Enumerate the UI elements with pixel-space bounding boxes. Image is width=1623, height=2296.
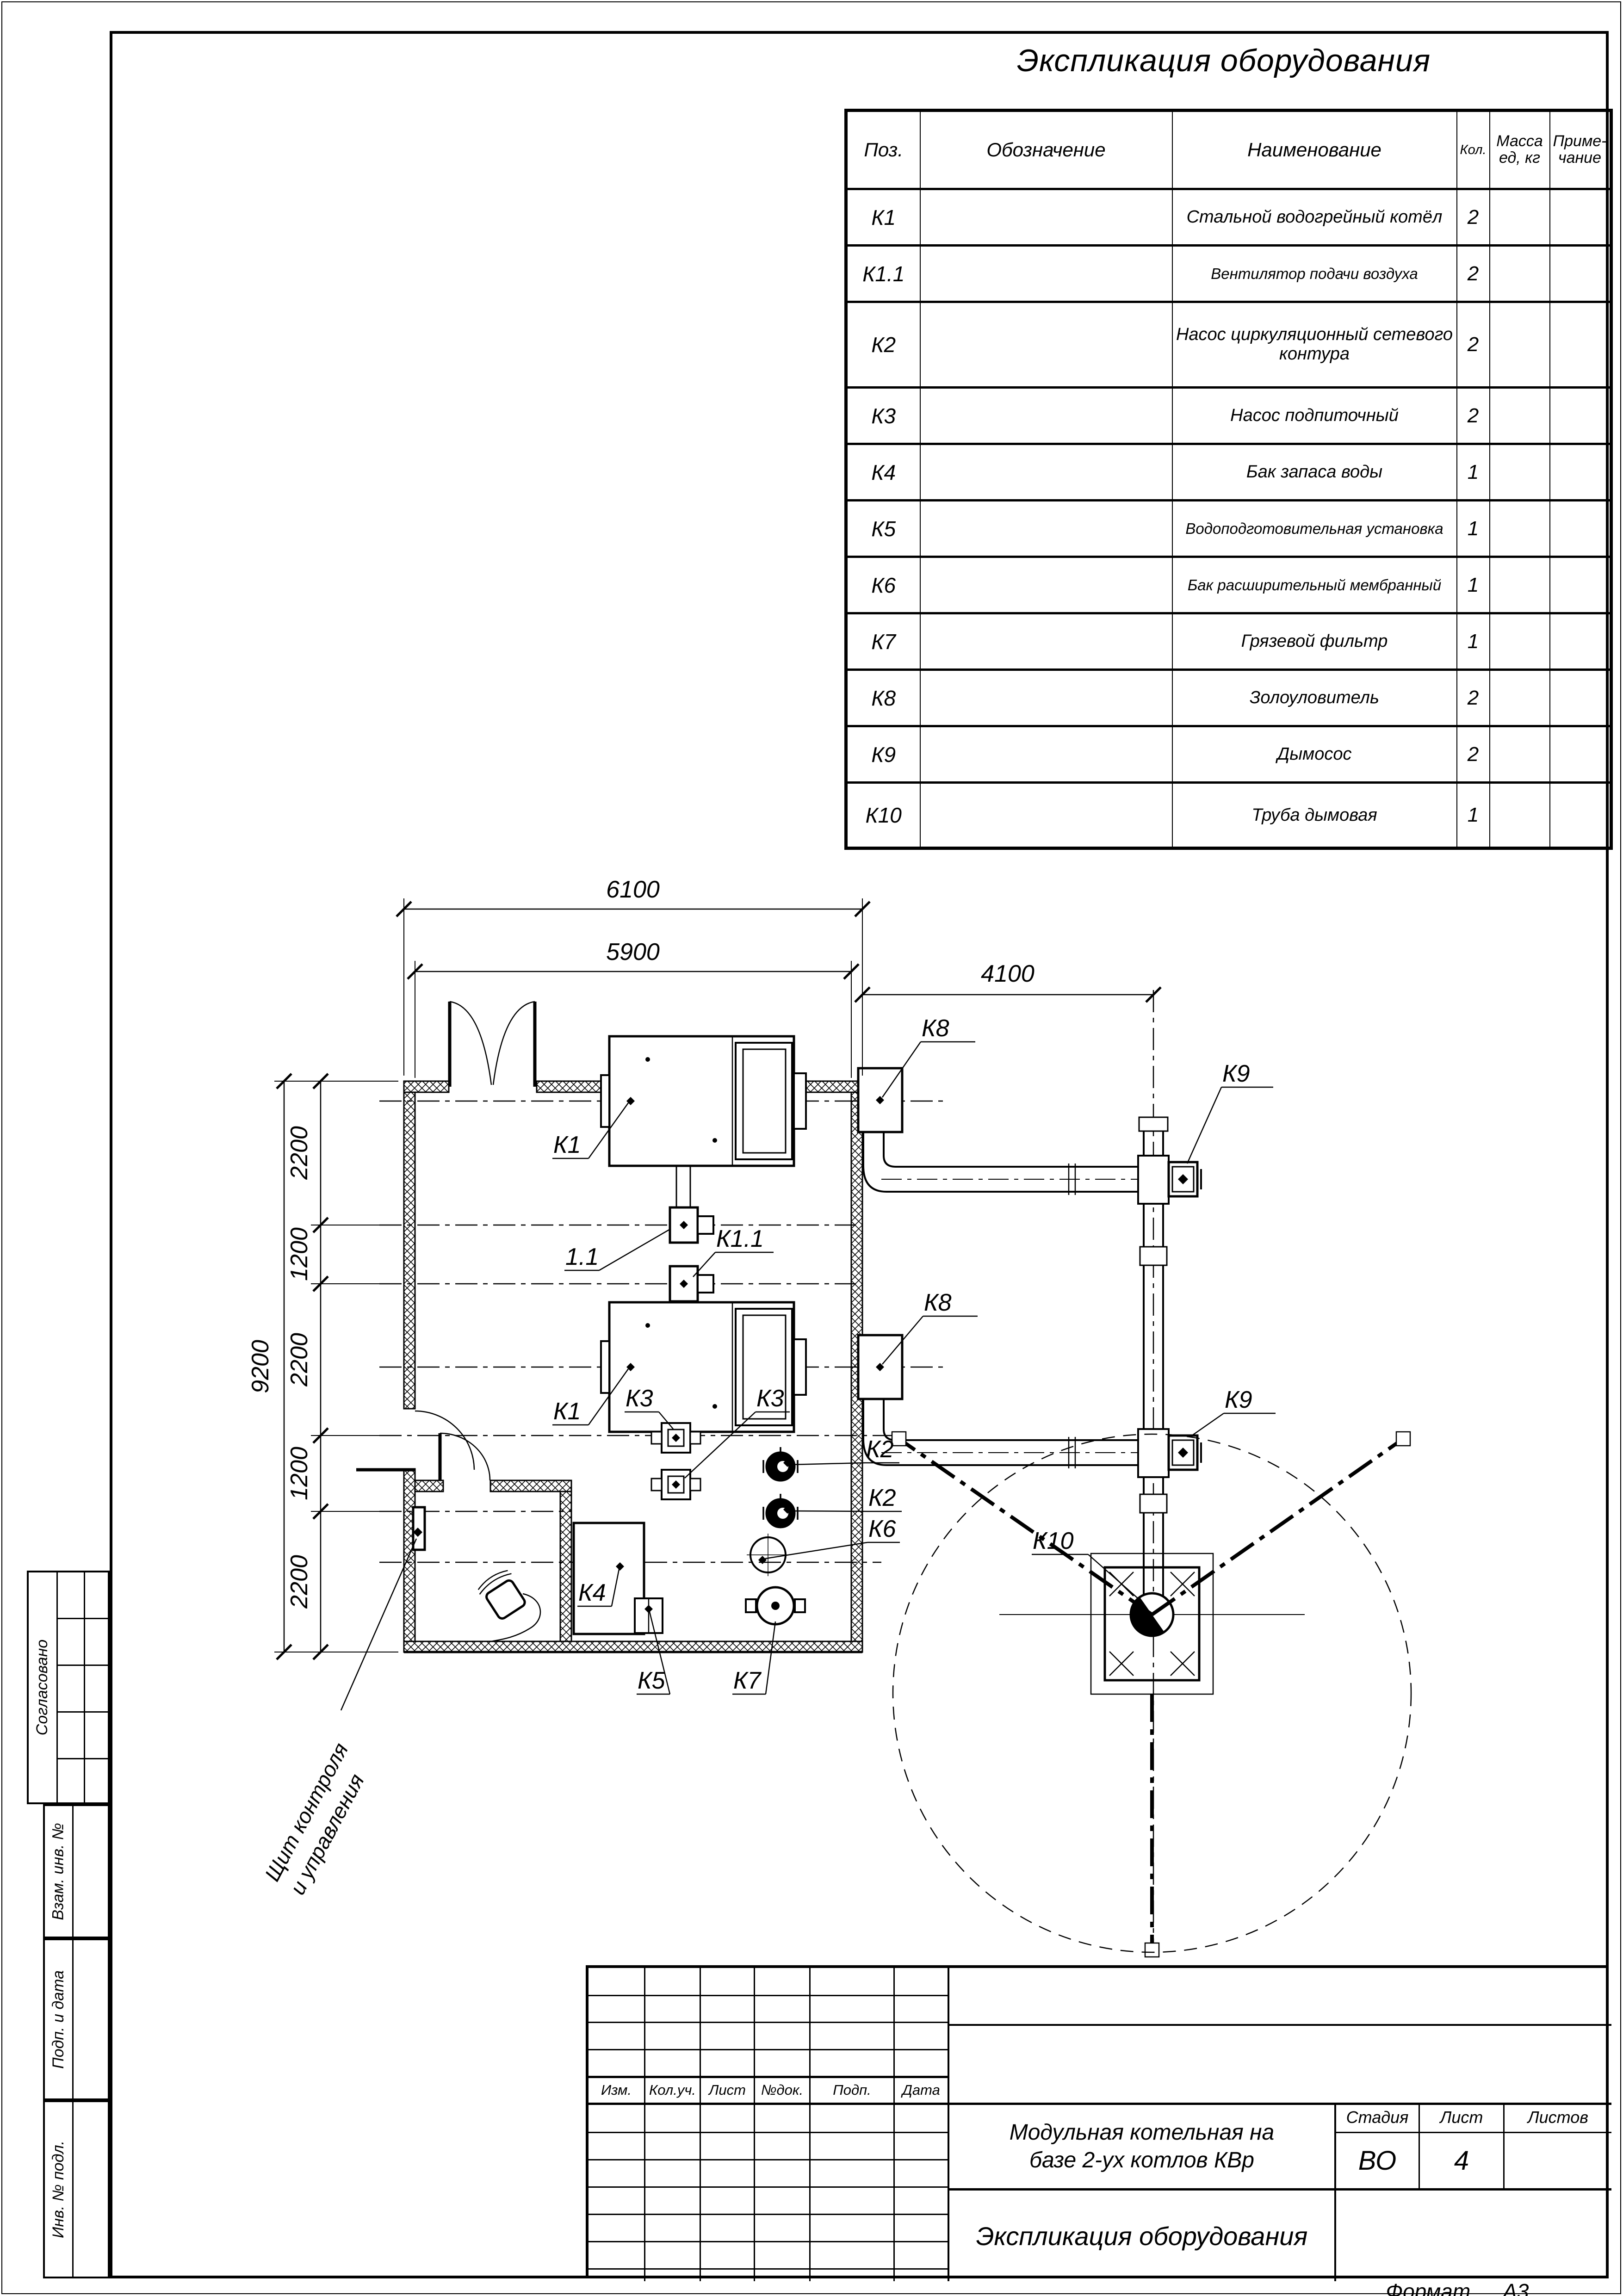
tb-doc-title: Модульная котельная на базе 2-ух котлов …: [949, 2105, 1334, 2188]
tb-sheets-label: Листов: [1505, 2103, 1611, 2132]
tb-hline: [588, 1995, 949, 1996]
sign-date-label: Подп. и дата: [50, 1970, 68, 2069]
tb-rev-dok: №док.: [755, 2078, 809, 2103]
flue-duct-bottom: [881, 1437, 1152, 1468]
dim-6100: 6100: [606, 876, 660, 903]
tb-rev-koluch: Кол.уч.: [645, 2078, 700, 2103]
inv-no-box: Инв. № подл.: [43, 2100, 110, 2278]
inv-no-divider: [72, 2102, 74, 2277]
sign-date-label-cell: Подп. и дата: [45, 1940, 72, 2098]
label-k3-right: К3: [756, 1385, 784, 1412]
label-k2-top: К2: [866, 1436, 894, 1463]
sink: [475, 1567, 540, 1641]
tb-hline: [588, 2241, 949, 2242]
tb-hline: [588, 2103, 949, 2105]
replace-inv-label: Взам. инв. №: [50, 1823, 68, 1920]
sign-date-divider: [72, 1940, 74, 2098]
title-block: Изм. Кол.уч. Лист №док. Подп. Дата Модул…: [586, 1965, 1609, 2278]
approved-label: Согласовано: [34, 1640, 52, 1735]
inv-no-label: Инв. № подл.: [50, 2141, 68, 2238]
dim-9200: 9200: [247, 1340, 274, 1393]
fan-k1-1: [670, 1266, 713, 1301]
replace-inv-box: Взам. инв. №: [43, 1804, 110, 1938]
format-label: Формат: [1386, 2279, 1471, 2296]
tb-stage-value: ВО: [1336, 2133, 1419, 2188]
format-note: Формат А3: [1360, 2279, 1555, 2296]
dimension-texts: 6100 5900 4100 9200 2200 1200 2200 1200 …: [247, 876, 1035, 1609]
entrance-double-door: [450, 1002, 535, 1087]
tb-hline: [588, 2159, 949, 2160]
tb-sheet-label: Лист: [1420, 2103, 1503, 2132]
label-k7: К7: [733, 1667, 762, 1694]
approved-box: Согласовано: [27, 1571, 110, 1804]
tb-subtitle: Экспликация оборудования: [949, 2191, 1334, 2281]
label-k1-top: К1: [553, 1132, 581, 1158]
format-value: А3: [1503, 2279, 1529, 2296]
label-fan-1-1: 1.1: [565, 1244, 599, 1270]
pump-k2-1: [763, 1447, 798, 1480]
dim-seg-5: 2200: [286, 1555, 313, 1609]
chimney-k10: [1091, 1553, 1213, 1694]
tb-hline: [588, 2132, 949, 2133]
tb-rev-data: Дата: [895, 2078, 948, 2103]
label-k4: К4: [578, 1579, 606, 1606]
tb-vline: [809, 1968, 811, 2281]
tb-hline: [588, 2022, 949, 2023]
approved-row-line: [56, 1758, 108, 1759]
tb-rev-podp: Подп.: [811, 2078, 893, 2103]
inv-no-label-cell: Инв. № подл.: [45, 2102, 72, 2277]
tb-sheets-value: [1505, 2133, 1611, 2188]
dim-5900: 5900: [606, 939, 660, 965]
smoke-exhauster-k9-top: [1169, 1162, 1201, 1196]
tb-vline: [754, 1968, 755, 2281]
smoke-exhauster-k9-bottom: [1169, 1436, 1201, 1470]
drawing-sheet: Экспликация оборудования Поз. Обозначени…: [0, 0, 1623, 2296]
label-fan-k1-1: К1.1: [716, 1225, 764, 1252]
water-treatment-k5: [635, 1598, 663, 1633]
fan-1-1: [670, 1166, 713, 1243]
partition-door: [440, 1433, 490, 1480]
tb-hline: [588, 2186, 949, 2188]
sign-date-box: Подп. и дата: [43, 1938, 110, 2100]
filter-k7: [746, 1587, 805, 1624]
water-tank-k4: [574, 1523, 644, 1634]
approved-divider-2: [84, 1572, 85, 1802]
dim-seg-1: 2200: [286, 1126, 313, 1180]
flue-duct-top: [881, 1163, 1152, 1195]
dim-seg-3: 2200: [286, 1333, 313, 1387]
tb-vline: [893, 1968, 895, 2281]
control-panel-note: Щит контроля и управления: [260, 1739, 378, 1899]
left-wall-door: [356, 1411, 474, 1470]
approved-row-line: [56, 1665, 108, 1666]
approved-row-line: [56, 1618, 108, 1619]
approved-divider-1: [56, 1572, 58, 1802]
tb-rev-izm: Изм.: [588, 2078, 644, 2103]
label-k3-left: К3: [626, 1385, 653, 1412]
label-k10: К10: [1033, 1528, 1074, 1554]
tb-hline: [588, 2214, 949, 2215]
expansion-tank-k6: [747, 1534, 789, 1576]
replace-inv-divider: [72, 1806, 74, 1937]
tb-hline-right: [949, 2024, 1611, 2026]
tb-rev-list: Лист: [701, 2078, 754, 2103]
approved-label-cell: Согласовано: [29, 1572, 56, 1802]
tb-vline: [644, 1968, 645, 2281]
label-k9-bottom: К9: [1225, 1386, 1252, 1413]
label-k8-top: К8: [922, 1015, 949, 1042]
label-k6: К6: [868, 1516, 896, 1542]
tb-stage-label: Стадия: [1336, 2103, 1419, 2132]
ash-catcher-k8-top: [858, 1068, 902, 1192]
replace-inv-label-cell: Взам. инв. №: [45, 1806, 72, 1937]
label-k2-bottom: К2: [868, 1485, 896, 1511]
label-k9-top: К9: [1222, 1060, 1250, 1087]
tb-hline: [588, 2268, 949, 2270]
dim-4100: 4100: [981, 960, 1035, 987]
tb-vline: [700, 1968, 701, 2281]
approved-row-line: [56, 1711, 108, 1713]
tb-hline: [588, 2049, 949, 2050]
tb-sheet-value: 4: [1420, 2133, 1503, 2188]
tb-doc-title-l2: базе 2-ух котлов КВр: [1010, 2147, 1274, 2174]
label-k5: К5: [638, 1667, 666, 1694]
tb-doc-title-l1: Модульная котельная на: [1010, 2119, 1274, 2147]
floor-plan-svg: Щит контроля и управления: [0, 0, 1623, 2296]
label-k1-bottom: К1: [553, 1398, 581, 1425]
pump-k3-2: [651, 1470, 700, 1499]
label-k8-bottom: К8: [924, 1289, 952, 1316]
dim-seg-4: 1200: [286, 1447, 313, 1500]
dim-seg-2: 1200: [286, 1227, 313, 1281]
